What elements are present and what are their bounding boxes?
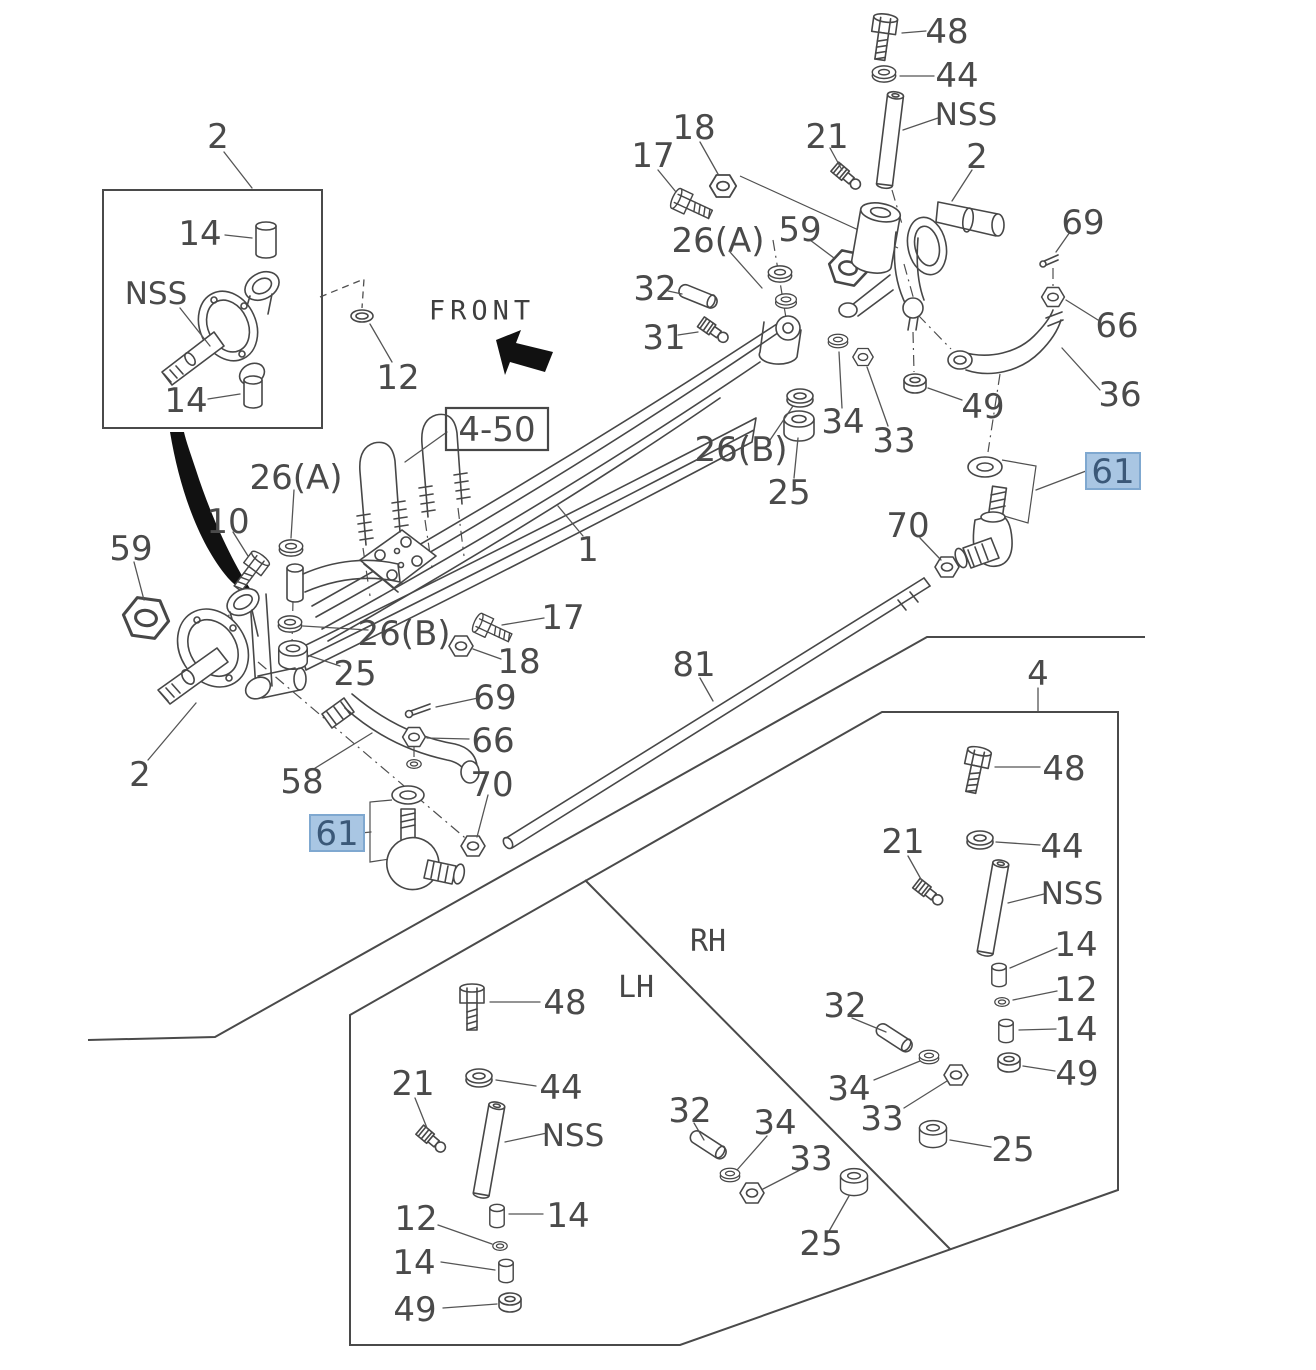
part-label-34[interactable]: 34 — [753, 1103, 796, 1143]
label-text[interactable]: 12 — [394, 1199, 437, 1239]
part-label-nss: NSS — [1041, 876, 1104, 912]
part-label-31[interactable]: 31 — [642, 318, 685, 358]
label-text[interactable]: 66 — [1095, 306, 1138, 346]
part-label-14[interactable]: 14 — [178, 214, 221, 254]
part-label-nss: NSS — [125, 276, 188, 312]
label-text[interactable]: 4 — [1027, 654, 1049, 694]
part-label-33[interactable]: 33 — [789, 1139, 832, 1179]
label-text[interactable]: 32 — [633, 269, 676, 309]
label-text[interactable]: 26(B) — [694, 430, 787, 470]
label-text[interactable]: 18 — [497, 642, 540, 682]
part-label-36[interactable]: 36 — [1098, 375, 1141, 415]
label-text[interactable]: 49 — [1055, 1054, 1098, 1094]
front-arrow — [496, 330, 553, 375]
part-label-12[interactable]: 12 — [376, 358, 419, 398]
label-text[interactable]: 25 — [799, 1224, 842, 1264]
label-text[interactable]: 48 — [925, 12, 968, 52]
part-label-32[interactable]: 32 — [668, 1091, 711, 1131]
label-text[interactable]: 69 — [1061, 203, 1104, 243]
label-text[interactable]: 49 — [393, 1290, 436, 1330]
label-text[interactable]: 44 — [935, 56, 978, 96]
label-text: NSS — [1041, 876, 1104, 912]
part-label-70[interactable]: 70 — [470, 765, 513, 805]
part-label-44[interactable]: 44 — [1040, 827, 1083, 867]
label-text[interactable]: 31 — [642, 318, 685, 358]
part-label-44[interactable]: 44 — [539, 1068, 582, 1108]
label-text[interactable]: 48 — [1042, 749, 1085, 789]
label-text: NSS — [542, 1118, 605, 1154]
part-label-66[interactable]: 66 — [1095, 306, 1138, 346]
label-text[interactable]: 12 — [1054, 970, 1097, 1010]
label-text[interactable]: 2 — [129, 755, 151, 795]
part-label-14[interactable]: 14 — [392, 1243, 435, 1283]
label-text[interactable]: 61 — [1091, 452, 1134, 492]
label-text[interactable]: 44 — [539, 1068, 582, 1108]
label-text[interactable]: 1 — [577, 530, 599, 570]
part-label-59[interactable]: 59 — [109, 529, 152, 569]
label-text[interactable]: 34 — [753, 1103, 796, 1143]
label-text[interactable]: 26(B) — [357, 614, 450, 654]
label-text[interactable]: 66 — [471, 721, 514, 761]
label-text[interactable]: 4-50 — [458, 410, 535, 450]
label-text[interactable]: 59 — [109, 529, 152, 569]
label-text[interactable]: 14 — [164, 381, 207, 421]
part-label-69[interactable]: 69 — [1061, 203, 1104, 243]
part-label-14[interactable]: 14 — [1054, 925, 1097, 965]
label-text[interactable]: 21 — [391, 1064, 434, 1104]
label-text[interactable]: 21 — [881, 822, 924, 862]
label-text[interactable]: 17 — [541, 598, 584, 638]
part-label-32[interactable]: 32 — [633, 269, 676, 309]
part-label-21[interactable]: 21 — [881, 822, 924, 862]
label-text: RH — [690, 924, 726, 959]
part-label-70[interactable]: 70 — [886, 506, 929, 546]
part-label-17[interactable]: 17 — [631, 136, 674, 176]
label-text[interactable]: 25 — [991, 1130, 1034, 1170]
label-text: FRONT — [429, 296, 535, 327]
part-label-17[interactable]: 17 — [541, 598, 584, 638]
part-label-nss: NSS — [935, 97, 998, 133]
label-text[interactable]: 49 — [961, 387, 1004, 427]
label-text[interactable]: 14 — [1054, 925, 1097, 965]
lh-section-label: LH — [618, 970, 654, 1005]
part-label-21[interactable]: 21 — [391, 1064, 434, 1104]
part-labels: 214NSS1412FRONT1718214844NSS269663626(A)… — [109, 12, 1141, 1330]
label-text[interactable]: 33 — [860, 1099, 903, 1139]
part-label-25[interactable]: 25 — [991, 1130, 1034, 1170]
part-label-18[interactable]: 18 — [497, 642, 540, 682]
right-parts-group — [874, 745, 1020, 1148]
part-label-2[interactable]: 2 — [129, 755, 151, 795]
label-text[interactable]: 21 — [805, 117, 848, 157]
part-label-14[interactable]: 14 — [546, 1196, 589, 1236]
part-label-66[interactable]: 66 — [471, 721, 514, 761]
part-label-69[interactable]: 69 — [473, 678, 516, 718]
diagram-canvas: 214NSS1412FRONT1718214844NSS269663626(A)… — [0, 0, 1316, 1370]
part-label-48[interactable]: 48 — [543, 983, 586, 1023]
part-label-26B[interactable]: 26(B) — [694, 430, 787, 470]
label-text[interactable]: 25 — [767, 473, 810, 513]
label-text[interactable]: 32 — [823, 986, 866, 1026]
label-text[interactable]: 32 — [668, 1091, 711, 1131]
part-label-4[interactable]: 4 — [1027, 654, 1049, 694]
label-text[interactable]: 18 — [672, 108, 715, 148]
label-text[interactable]: 26(A) — [671, 221, 764, 261]
rh-section-label: RH — [690, 924, 726, 959]
part-label-34[interactable]: 34 — [821, 402, 864, 442]
label-text[interactable]: 14 — [1054, 1010, 1097, 1050]
label-text: LH — [618, 970, 654, 1005]
label-text[interactable]: 34 — [821, 402, 864, 442]
part-label-49[interactable]: 49 — [1055, 1054, 1098, 1094]
part-label-18[interactable]: 18 — [672, 108, 715, 148]
part-label-25[interactable]: 25 — [333, 654, 376, 694]
part-label-49[interactable]: 49 — [393, 1290, 436, 1330]
label-text[interactable]: 59 — [778, 210, 821, 250]
part-label-1[interactable]: 1 — [577, 530, 599, 570]
label-text[interactable]: 14 — [178, 214, 221, 254]
section-panels — [88, 637, 1145, 1345]
part-label-21[interactable]: 21 — [805, 117, 848, 157]
part-label-58[interactable]: 58 — [280, 762, 323, 802]
label-text[interactable]: 2 — [966, 137, 988, 177]
part-label-61[interactable]: 61 — [1086, 452, 1140, 492]
part-label-25[interactable]: 25 — [799, 1224, 842, 1264]
part-label-14[interactable]: 14 — [1054, 1010, 1097, 1050]
label-text[interactable]: 33 — [872, 421, 915, 461]
label-text[interactable]: 14 — [546, 1196, 589, 1236]
part-label-49[interactable]: 49 — [961, 387, 1004, 427]
label-text[interactable]: 61 — [315, 814, 358, 854]
part-label-44[interactable]: 44 — [935, 56, 978, 96]
front-direction-label: FRONT — [429, 296, 535, 327]
label-text[interactable]: 70 — [886, 506, 929, 546]
label-text: NSS — [125, 276, 188, 312]
part-label-81[interactable]: 81 — [672, 645, 715, 685]
part-label-48[interactable]: 48 — [925, 12, 968, 52]
part-label-33[interactable]: 33 — [872, 421, 915, 461]
part-label-10[interactable]: 10 — [206, 502, 249, 542]
part-label-59[interactable]: 59 — [778, 210, 821, 250]
part-label-nss: NSS — [542, 1118, 605, 1154]
label-text[interactable]: 33 — [789, 1139, 832, 1179]
label-text[interactable]: 14 — [392, 1243, 435, 1283]
part-label-61[interactable]: 61 — [310, 814, 364, 854]
part-label-12[interactable]: 12 — [394, 1199, 437, 1239]
label-text[interactable]: 58 — [280, 762, 323, 802]
part-label-26A[interactable]: 26(A) — [671, 221, 764, 261]
parts-diagram-page: 214NSS1412FRONT1718214844NSS269663626(A)… — [0, 0, 1316, 1370]
label-text[interactable]: 17 — [631, 136, 674, 176]
part-label-33[interactable]: 33 — [860, 1099, 903, 1139]
label-text[interactable]: 69 — [473, 678, 516, 718]
part-label-4-50[interactable]: 4-50 — [446, 408, 548, 450]
part-label-26B[interactable]: 26(B) — [357, 614, 450, 654]
part-label-32[interactable]: 32 — [823, 986, 866, 1026]
label-text[interactable]: 44 — [1040, 827, 1083, 867]
part-label-2[interactable]: 2 — [966, 137, 988, 177]
label-text[interactable]: 36 — [1098, 375, 1141, 415]
part-label-2[interactable]: 2 — [207, 117, 229, 157]
label-text[interactable]: 25 — [333, 654, 376, 694]
label-text[interactable]: 10 — [206, 502, 249, 542]
part-label-14[interactable]: 14 — [164, 381, 207, 421]
label-text[interactable]: 26(A) — [249, 458, 342, 498]
part-label-48[interactable]: 48 — [1042, 749, 1085, 789]
label-text[interactable]: 12 — [376, 358, 419, 398]
label-text[interactable]: 48 — [543, 983, 586, 1023]
label-text[interactable]: 2 — [207, 117, 229, 157]
label-text[interactable]: 81 — [672, 645, 715, 685]
label-text[interactable]: 70 — [470, 765, 513, 805]
label-text: NSS — [935, 97, 998, 133]
part-label-12[interactable]: 12 — [1054, 970, 1097, 1010]
part-label-26A[interactable]: 26(A) — [249, 458, 342, 498]
part-label-25[interactable]: 25 — [767, 473, 810, 513]
